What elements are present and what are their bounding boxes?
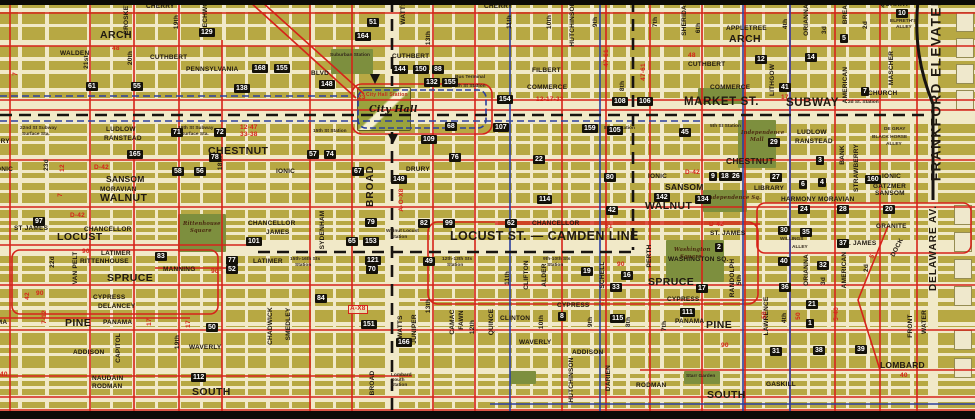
street-label: 8th xyxy=(620,81,627,91)
route-number-red: 61 xyxy=(605,224,613,231)
poi-number-badge: 16 xyxy=(621,271,633,280)
station-label: WILLINGS xyxy=(780,238,803,243)
poi-number-badge: 62 xyxy=(505,219,517,228)
poi-number-badge: 164 xyxy=(355,32,371,41)
poi-number-badge: 50 xyxy=(206,323,218,332)
street-label: PINE xyxy=(65,318,91,329)
route-number-red: 47 xyxy=(600,298,607,306)
poi-number-badge: 80 xyxy=(604,173,616,182)
street-label: 7th xyxy=(653,17,660,27)
street-label: 9th xyxy=(593,17,600,27)
poi-number-badge: 68 xyxy=(445,122,457,131)
street-label: DRURY xyxy=(406,167,430,174)
street-label: IONIC xyxy=(648,174,667,181)
route-number-red: 90 xyxy=(721,343,729,350)
street-label: RANSTEAD xyxy=(795,139,833,146)
poi-number-badge: 134 xyxy=(695,195,711,204)
street-label: LATIMER xyxy=(101,251,131,258)
station-label: ALLEY xyxy=(896,26,912,31)
street-label: WALNUT xyxy=(100,193,147,204)
route-number-red: 17 xyxy=(186,320,193,328)
poi-number-badge: 8 xyxy=(558,312,566,321)
route-number-red: 7 xyxy=(13,72,20,76)
poi-number-badge: 36 xyxy=(779,283,791,292)
blue-surface-routes xyxy=(0,0,975,419)
street-label: VAN PELT xyxy=(73,252,80,285)
route-number-red: 40 xyxy=(900,373,908,380)
street-label: 6th xyxy=(696,23,703,33)
street-label: LITHGOW xyxy=(770,64,777,96)
station-label: Station xyxy=(447,264,463,269)
station-label: ALLEY xyxy=(886,143,902,148)
street-label: PINE xyxy=(706,320,732,331)
route-number-red: D-42 xyxy=(685,170,700,177)
poi-number-badge: 115 xyxy=(610,314,625,323)
street-label: WAVERLY xyxy=(189,345,221,352)
street-label: CYPRESS xyxy=(667,297,699,304)
park-label: Square xyxy=(680,255,702,260)
street-label: SANSOM xyxy=(875,191,905,198)
poi-number-badge: 49 xyxy=(423,257,435,266)
street-label: DELAWARE AV. xyxy=(929,205,939,291)
poi-number-badge: 28 xyxy=(837,205,849,214)
route-number-red: 17 xyxy=(147,318,154,326)
poi-number-badge: 88 xyxy=(432,65,444,74)
street-label: CYPRESS xyxy=(93,295,125,302)
street-label: PANAMA xyxy=(675,319,704,326)
poi-number-badge: 155 xyxy=(442,78,458,87)
route-number-red: 17 xyxy=(781,95,789,102)
street-label: 8th xyxy=(626,317,633,327)
poi-number-badge: 166 xyxy=(396,338,412,347)
route-number-red: 12-17-33 xyxy=(536,97,564,104)
street-label: 20th xyxy=(128,51,135,65)
poi-number-badge: 65 xyxy=(346,237,358,246)
street-label: 19th xyxy=(174,15,181,29)
poi-number-badge: 160 xyxy=(865,175,881,184)
street-label: 11th xyxy=(507,15,514,29)
station-label: DE GRAY xyxy=(884,128,905,133)
street-label: PANAMA xyxy=(0,320,7,327)
poi-number-badge: 71 xyxy=(171,128,183,137)
street-label: 22d xyxy=(50,256,57,268)
street-label: BROAD xyxy=(370,371,377,396)
poi-number-badge: 38 xyxy=(813,346,825,355)
station-label: Bus Terminal xyxy=(455,76,485,81)
station-label: 2d St. Station xyxy=(848,101,879,106)
street-label: BANK xyxy=(840,145,847,165)
poi-number-badge: 27 xyxy=(770,173,782,182)
poi-number-badge: 165 xyxy=(127,150,143,159)
street-label: MANNING xyxy=(163,267,195,274)
street-label: AMERICAN xyxy=(842,252,849,289)
street-label: GASKILL xyxy=(766,382,796,389)
street-label: 9th xyxy=(588,317,595,327)
street-label: ARMORY xyxy=(0,139,10,146)
route-number-red: 50 xyxy=(796,312,803,320)
street-label: WATTS xyxy=(398,315,405,338)
poi-number-badge: 3 xyxy=(816,156,824,165)
red-surface-routes xyxy=(0,0,975,419)
poi-number-badge: 109 xyxy=(421,135,437,144)
street-label: ORIANNA xyxy=(804,4,811,36)
poi-number-badge: 57 xyxy=(307,150,319,159)
poi-number-badge: 6 xyxy=(799,180,807,189)
route-number-red: 90 xyxy=(36,291,44,298)
poi-number-badge: 84 xyxy=(315,294,327,303)
street-label: RANDOLPH xyxy=(730,259,737,297)
street-label: CUTHBERT xyxy=(688,62,725,69)
route-number-red: A-X8 xyxy=(348,305,368,314)
poi-number-badge: 112 xyxy=(191,373,206,382)
street-label: CHANCELLOR xyxy=(248,221,296,228)
street-label: DELANCEY xyxy=(98,304,135,311)
street-label: LATIMER xyxy=(253,259,283,266)
street-label: CHURCH xyxy=(868,91,897,98)
poi-number-badge: 107 xyxy=(493,123,509,132)
route-number-red: A-O-X8 xyxy=(399,188,406,211)
route-number-red: D-42 xyxy=(94,165,109,172)
philadelphia-transit-map: CHERRYCHERRYARCHARCHWALDENCUTHBERTCUTHBE… xyxy=(0,0,975,419)
poi-number-badge: 12 xyxy=(755,55,767,64)
poi-number-badge: 58 xyxy=(172,167,184,176)
poi-number-badge: 151 xyxy=(361,320,377,329)
poi-number-badge: 83 xyxy=(155,252,167,261)
street-label: PANAMA xyxy=(103,320,132,327)
street-label: NAUDAIN xyxy=(92,376,123,383)
station-label: ALLEY xyxy=(792,246,808,251)
poi-number-badge: 22 xyxy=(533,155,545,164)
poi-number-badge: 114 xyxy=(537,195,552,204)
park-label: Square xyxy=(190,229,212,234)
street-label: 4th xyxy=(782,313,789,323)
poi-number-badge: 9 xyxy=(709,172,717,181)
station-label: 5th St Station xyxy=(710,125,741,130)
street-label: BLVD xyxy=(311,71,329,78)
street-label: WATER xyxy=(922,310,929,334)
poi-number-badge: 55 xyxy=(131,82,143,91)
street-label: SHERIDAN xyxy=(682,0,689,36)
park-label: Rittenhouse xyxy=(183,222,221,227)
poi-number-badge: 154 xyxy=(497,95,513,104)
poi-number-badge: 138 xyxy=(234,84,250,93)
poi-number-badge: 149 xyxy=(391,175,407,184)
poi-number-badge: 29 xyxy=(768,138,780,147)
route-number-red: 90 xyxy=(617,262,625,269)
route-number-red: 33-38 xyxy=(240,132,258,139)
poi-number-badge: 108 xyxy=(612,97,628,106)
poi-number-badge: 52 xyxy=(226,265,238,274)
street-label: LOMBARD xyxy=(880,361,925,370)
poi-number-badge: 41 xyxy=(779,83,791,92)
route-number-red: 5-40 xyxy=(834,307,841,321)
street-label: MORAVIAN xyxy=(818,197,855,204)
street-label: SPRUCE xyxy=(107,273,153,284)
street-label: CROSKEY xyxy=(124,1,131,35)
street-label: RODMAN xyxy=(92,384,122,391)
station-label: Suburban Station xyxy=(330,54,370,59)
street-label: ADDISON xyxy=(572,350,603,357)
street-label: LUDLOW xyxy=(797,130,827,137)
station-label: Surface Sta. xyxy=(22,133,50,138)
street-label: PENNSYLVANIA xyxy=(186,67,238,74)
poi-number-badge: 37 xyxy=(837,239,849,248)
poi-number-badge: 30 xyxy=(778,226,790,235)
poi-number-badge: 79 xyxy=(365,218,377,227)
street-label: CAMAC xyxy=(450,309,457,334)
street-label: COMMERCE xyxy=(710,85,750,92)
street-label: 19th xyxy=(175,335,182,349)
street-label: ARCH xyxy=(729,34,761,45)
street-label: PERTH xyxy=(647,244,654,267)
park-label: Independence Sq. xyxy=(706,196,761,201)
station-label: Station xyxy=(547,264,563,269)
street-label: 11th xyxy=(505,271,512,285)
poi-number-badge: 1 xyxy=(806,319,814,328)
poi-number-badge: 33 xyxy=(610,283,622,292)
poi-number-badge: 76 xyxy=(449,153,461,162)
poi-number-badge: 70 xyxy=(366,265,378,274)
poi-number-badge: 148 xyxy=(319,80,335,89)
street-label: 10th xyxy=(547,15,554,29)
street-label: CLINTON xyxy=(500,316,530,323)
poi-number-badge: 67 xyxy=(352,167,364,176)
poi-number-badge: 155 xyxy=(274,64,290,73)
street-label: JAMES xyxy=(266,230,289,237)
street-label: SMEDLEY xyxy=(286,308,293,341)
poi-number-badge: 106 xyxy=(637,97,653,106)
route-number-red: 40 xyxy=(0,372,8,379)
poi-number-badge: 5 xyxy=(840,34,848,43)
poi-number-badge: 121 xyxy=(365,256,381,265)
route-number-red: 48 xyxy=(112,46,120,53)
street-label: ADDISON xyxy=(73,350,104,357)
poi-number-badge: 42 xyxy=(606,206,618,215)
poi-number-badge: 78 xyxy=(209,153,221,162)
route-number-red: 90 xyxy=(211,269,219,276)
street-label: 5th xyxy=(737,275,744,285)
station-label: Surface Sta. xyxy=(181,133,209,138)
street-label: ORIANNA xyxy=(804,254,811,286)
major-street-label: SUBWAY xyxy=(786,98,839,110)
route-number-red: 23 xyxy=(358,95,366,102)
street-label: RANSTEAD xyxy=(104,136,142,143)
map-border-top xyxy=(0,0,975,5)
street-label: QUINCE xyxy=(489,309,496,335)
street-label: RITTENHOUSE xyxy=(80,259,129,266)
poi-number-badge: 99 xyxy=(443,219,455,228)
station-label: 15th St Station xyxy=(313,130,347,135)
street-label: SOUTH xyxy=(192,387,231,398)
street-label: LIBRARY xyxy=(754,186,784,193)
street-label: STRAWBERRY xyxy=(854,144,861,192)
poi-number-badge: 32 xyxy=(817,261,829,270)
route-number-red: 50 xyxy=(762,311,769,319)
station-label: Starr Garden xyxy=(686,375,715,380)
street-label: HUTCHINSON xyxy=(569,357,576,402)
poi-number-badge: 39 xyxy=(855,345,867,354)
street-label: GRANITE xyxy=(876,224,907,231)
street-label: SANSOM xyxy=(106,175,145,184)
route-number-red: 42 xyxy=(25,292,32,300)
park-label: Washington xyxy=(674,248,710,253)
street-label: SANSOM xyxy=(665,183,704,192)
route-lines xyxy=(0,0,975,419)
street-label: CUTHBERT xyxy=(392,54,429,61)
street-label: 3d xyxy=(821,277,828,285)
route-number-red: 7 xyxy=(58,193,65,197)
street-label: APPLETREE xyxy=(726,26,767,33)
poi-number-badge: 45 xyxy=(679,128,691,137)
route-number-red: 47-61 xyxy=(641,63,648,81)
poi-number-badge: 26 xyxy=(730,172,742,181)
poi-number-badge: 20 xyxy=(883,205,895,214)
street-label: 12th xyxy=(470,320,477,334)
street-label: SCHELL xyxy=(600,261,607,288)
street-label: WALNUT xyxy=(645,201,692,212)
subway-dashed-lines xyxy=(0,0,928,419)
street-label: FILBERT xyxy=(532,68,561,75)
poi-number-badge: 10 xyxy=(896,9,908,18)
poi-number-badge: 19 xyxy=(581,267,593,276)
street-label: CUTHBERT xyxy=(150,55,187,62)
poi-number-badge: 56 xyxy=(194,167,206,176)
park-label: Mall xyxy=(750,138,764,143)
route-number-red: D-42 xyxy=(70,213,85,220)
poi-number-badge: 77 xyxy=(226,256,238,265)
street-label: 4th xyxy=(783,19,790,29)
route-number-red: 47-61 xyxy=(604,49,611,67)
street-label: FRONT xyxy=(908,314,915,337)
street-label: HARMONY xyxy=(781,197,816,204)
poi-number-badge: 168 xyxy=(252,64,268,73)
street-label: ST. JAMES xyxy=(710,231,745,238)
street-label: LOCUST xyxy=(57,232,103,243)
street-label: MASCHER xyxy=(889,51,896,85)
poi-number-badge: 24 xyxy=(798,205,810,214)
poi-number-badge: 132 xyxy=(424,78,440,87)
poi-number-badge: 35 xyxy=(800,228,812,237)
station-label: BLACK HORSE xyxy=(872,136,907,141)
poi-number-badge: 4 xyxy=(818,178,826,187)
poi-number-badge: 74 xyxy=(324,150,336,159)
street-label: FAWN xyxy=(459,310,466,330)
street-label: 21st xyxy=(84,55,91,69)
street-label: 3d xyxy=(822,26,829,34)
poi-number-badge: 101 xyxy=(246,237,262,246)
street-label: 2d xyxy=(864,264,871,272)
poi-number-badge: 159 xyxy=(582,124,598,133)
street-label: CHADWICK xyxy=(268,307,275,345)
station-label: City Hall Station xyxy=(366,93,408,98)
street-label: CHANCELLOR xyxy=(532,221,580,228)
poi-number-badge: 17 xyxy=(696,284,708,293)
major-street-label: MARKET ST. xyxy=(684,97,759,109)
poi-number-badge: 61 xyxy=(86,82,98,91)
street-label: IONIC xyxy=(0,167,13,174)
poi-number-badge: 72 xyxy=(214,128,226,137)
poi-number-badge: 14 xyxy=(805,53,817,62)
street-label: RODMAN xyxy=(636,383,666,390)
street-label: 2d xyxy=(863,21,870,29)
street-label: CYPRESS xyxy=(557,303,589,310)
poi-number-badge: 21 xyxy=(806,300,818,309)
map-border-bottom xyxy=(0,411,975,419)
street-label: 23d xyxy=(44,159,51,171)
poi-number-badge: 111 xyxy=(680,308,695,317)
street-label: LUDLOW xyxy=(106,127,136,134)
street-label: SPRUCE xyxy=(648,277,694,288)
station-label: Station xyxy=(295,264,311,269)
park-label: Independence xyxy=(741,131,784,136)
poi-number-badge: 2 xyxy=(715,243,723,252)
street-label: JUNIPER xyxy=(412,314,419,344)
street-label: SYDENHAM xyxy=(320,211,327,250)
station-label: Station xyxy=(391,236,407,241)
street-label: DARIEN xyxy=(606,365,613,391)
street-label: SOUTH xyxy=(707,390,746,401)
street-label: BROAD xyxy=(366,165,376,207)
route-number-red: 12 xyxy=(60,164,67,172)
street-label: AMERICAN xyxy=(843,67,850,104)
poi-number-badge: 31 xyxy=(770,347,782,356)
poi-number-badge: 153 xyxy=(363,237,379,246)
street-label: IONIC xyxy=(276,169,295,176)
major-street-label: FRANKFORD ELEVATED xyxy=(929,0,943,181)
poi-number-badge: 142 xyxy=(654,193,670,202)
route-number-red: 48 xyxy=(688,53,696,60)
route-number-red: 7-12 xyxy=(42,310,49,324)
poi-number-badge: 105 xyxy=(607,126,623,135)
street-label: CAPITOL xyxy=(116,333,123,363)
poi-number-badge: 97 xyxy=(33,217,45,226)
poi-number-badge: 40 xyxy=(778,257,790,266)
poi-number-badge: 82 xyxy=(418,219,430,228)
poi-number-badge: 150 xyxy=(413,65,429,74)
poi-number-badge: 129 xyxy=(199,28,215,37)
street-label: 7th xyxy=(662,321,669,331)
poi-number-badge: 51 xyxy=(367,18,379,27)
street-label: City Hall xyxy=(369,105,418,115)
route-number-red: D-42 xyxy=(709,222,724,229)
street-label: IONIC xyxy=(882,174,901,181)
route-number-red: 90 xyxy=(82,249,90,256)
street-label: CLIFTON xyxy=(524,260,531,289)
street-label: CHESTNUT xyxy=(726,157,774,166)
street-label: 13th xyxy=(426,31,433,45)
street-label: 13th xyxy=(426,299,433,313)
station-label: Station xyxy=(391,384,407,389)
street-label: HUTCHINSON xyxy=(570,1,577,46)
poi-number-badge: 7 xyxy=(861,87,869,96)
street-label: COMMERCE xyxy=(527,85,567,92)
street-label: 10th xyxy=(539,315,546,329)
street-label: WAVERLY xyxy=(519,340,551,347)
major-street-label: LOCUST ST. — CAMDEN LINE xyxy=(450,230,639,243)
street-label: ST JAMES xyxy=(14,226,48,233)
poi-number-badge: 144 xyxy=(392,65,408,74)
